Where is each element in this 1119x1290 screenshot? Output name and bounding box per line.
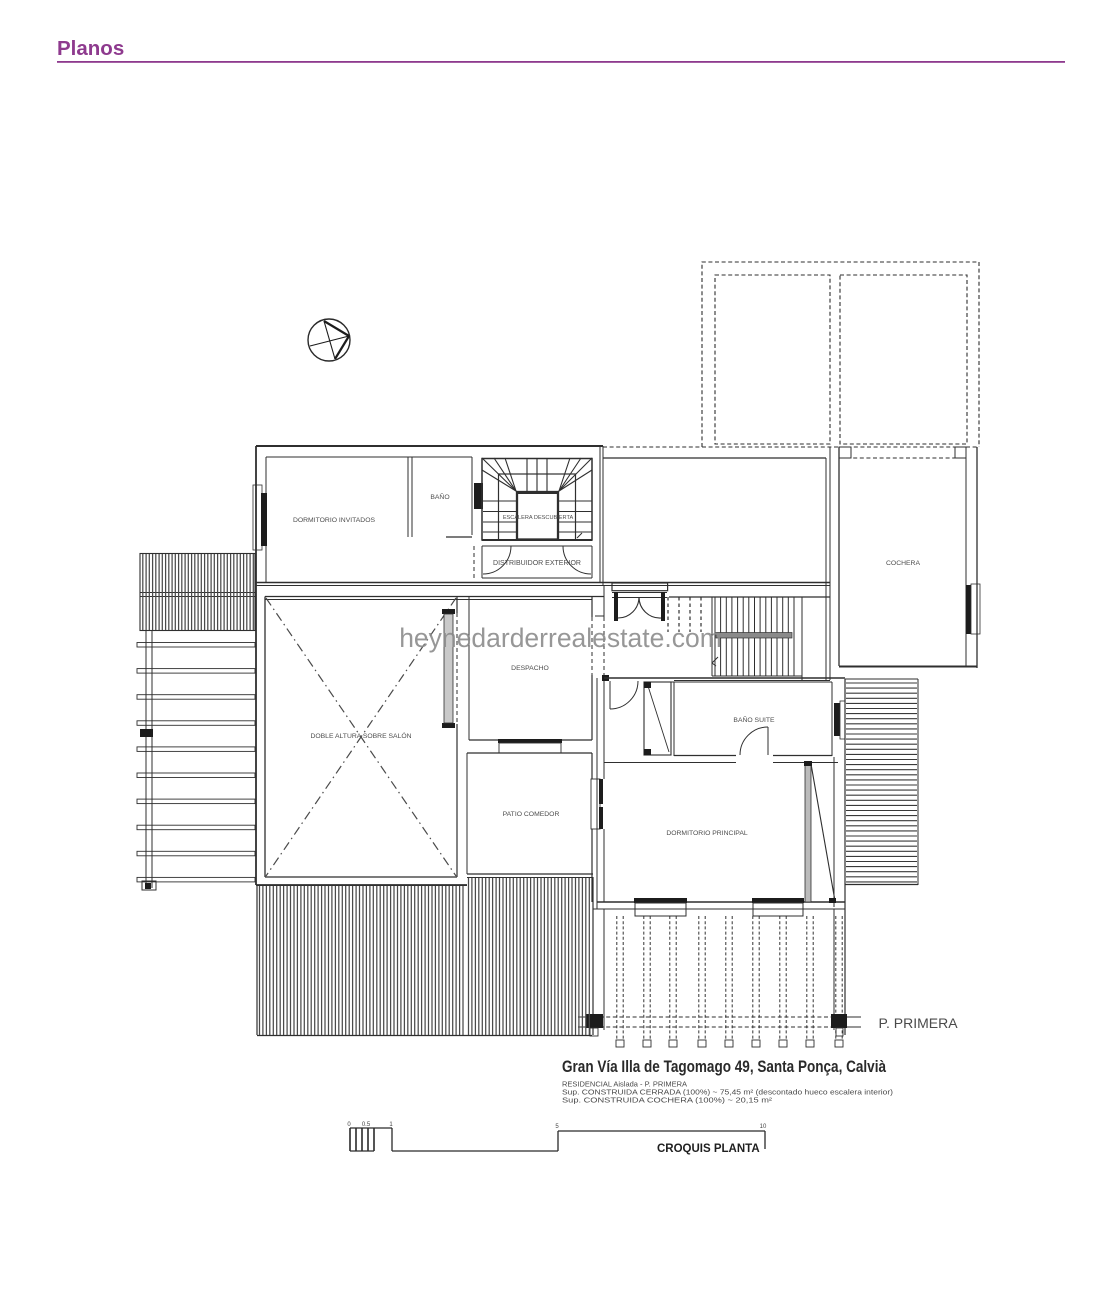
svg-text:DORMITORIO PRINCIPAL: DORMITORIO PRINCIPAL (666, 830, 748, 837)
svg-text:ESCALERA DESCUBIERTA: ESCALERA DESCUBIERTA (503, 515, 574, 521)
svg-text:DISTRIBUIDOR EXTERIOR: DISTRIBUIDOR EXTERIOR (493, 560, 581, 567)
svg-text:1: 1 (389, 1122, 393, 1128)
svg-text:Planos: Planos (57, 37, 124, 60)
svg-text:CROQUIS PLANTA: CROQUIS PLANTA (657, 1143, 760, 1155)
svg-text:DESPACHO: DESPACHO (511, 665, 549, 672)
svg-text:0.5: 0.5 (362, 1122, 371, 1128)
svg-text:PATIO COMEDOR: PATIO COMEDOR (503, 811, 560, 818)
svg-text:10: 10 (760, 1124, 767, 1130)
svg-text:BAÑO: BAÑO (430, 492, 449, 501)
svg-text:DOBLE ALTURA SOBRE SALÓN: DOBLE ALTURA SOBRE SALÓN (310, 731, 411, 740)
svg-text:COCHERA: COCHERA (886, 560, 920, 567)
svg-text:heynedarderrealestate.com: heynedarderrealestate.com (399, 623, 722, 653)
svg-text:BAÑO SUITE: BAÑO SUITE (733, 715, 775, 724)
svg-text:DORMITORIO INVITADOS: DORMITORIO INVITADOS (293, 517, 376, 524)
svg-text:0: 0 (347, 1122, 351, 1128)
svg-text:5: 5 (555, 1124, 559, 1130)
svg-text:Gran Vía Illa de Tagomago 49,: Gran Vía Illa de Tagomago 49, Santa Ponç… (562, 1057, 886, 1076)
svg-text:P. PRIMERA: P. PRIMERA (878, 1015, 958, 1031)
svg-text:Sup. CONSTRUIDA COCHERA (100%): Sup. CONSTRUIDA COCHERA (100%) ~ 20,15 m… (562, 1096, 773, 1105)
